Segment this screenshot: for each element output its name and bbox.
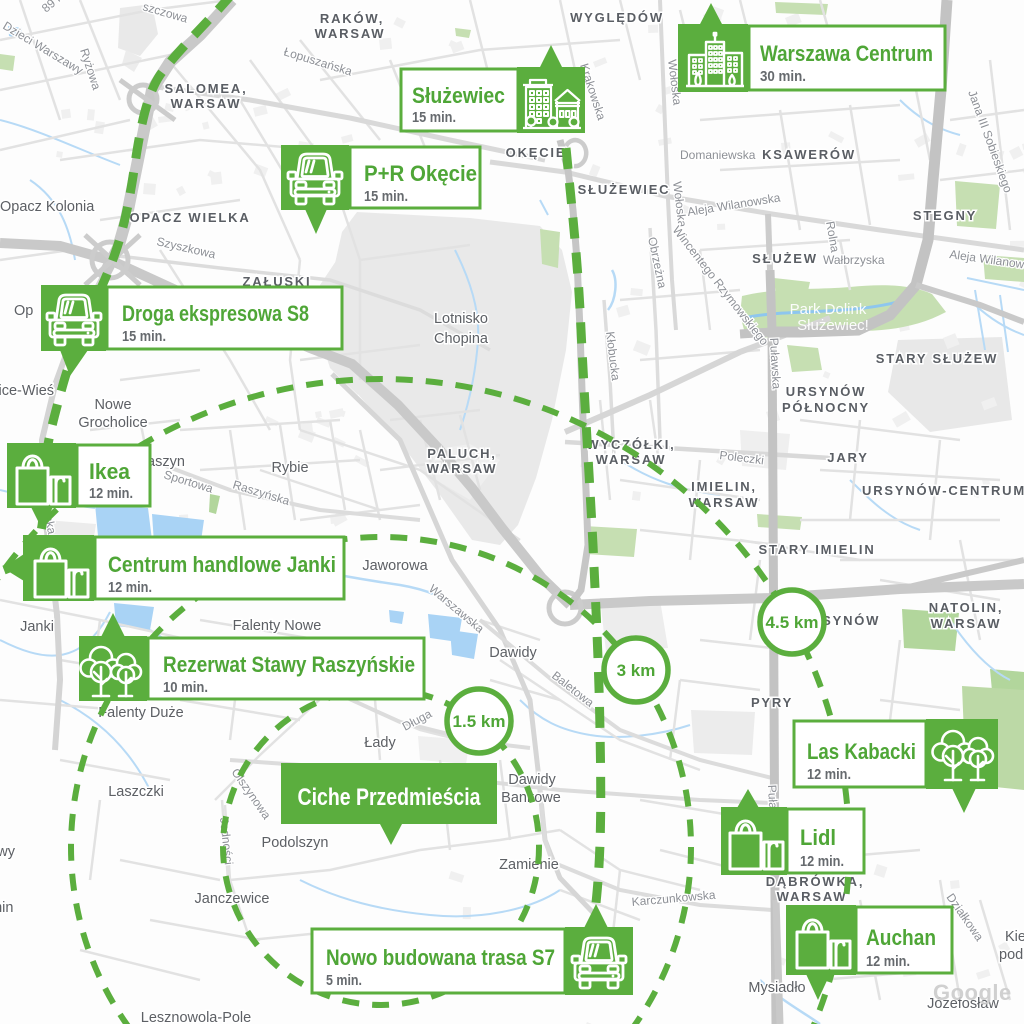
svg-text:Auchan: Auchan [866, 925, 936, 950]
svg-text:łowy: łowy [0, 844, 16, 860]
svg-text:Domaniewska: Domaniewska [680, 148, 756, 162]
svg-text:pod: pod [999, 947, 1023, 963]
svg-text:STEGNY: STEGNY [913, 208, 977, 223]
svg-text:WARSAW: WARSAW [931, 616, 1002, 631]
svg-text:PALUCH,: PALUCH, [427, 446, 496, 461]
svg-text:12 min.: 12 min. [800, 853, 844, 870]
svg-text:Rybie: Rybie [271, 460, 308, 476]
svg-text:KSAWERÓW: KSAWERÓW [762, 147, 856, 162]
svg-text:Grocholice: Grocholice [78, 415, 147, 431]
svg-text:Lidl: Lidl [800, 825, 836, 850]
svg-text:WARSAW: WARSAW [315, 26, 386, 41]
svg-text:STARY SŁUŻEW: STARY SŁUŻEW [876, 351, 998, 366]
svg-text:Janki: Janki [20, 619, 54, 635]
svg-text:Op: Op [14, 303, 33, 319]
svg-text:10 min.: 10 min. [163, 679, 208, 696]
svg-text:Służewiec!: Służewiec! [797, 317, 869, 334]
svg-text:Chopina: Chopina [434, 331, 489, 347]
svg-text:Ciche Przedmieścia: Ciche Przedmieścia [298, 784, 482, 811]
svg-text:Jaworowa: Jaworowa [362, 558, 428, 574]
svg-text:SALOMEA,: SALOMEA, [164, 81, 247, 96]
svg-text:Kie: Kie [1005, 929, 1024, 945]
svg-text:P+R Okęcie: P+R Okęcie [364, 161, 477, 186]
svg-text:Falenty Duże: Falenty Duże [98, 705, 183, 721]
svg-text:JARY: JARY [827, 450, 868, 465]
svg-text:wice-Wieś: wice-Wieś [0, 383, 54, 399]
svg-text:OPACZ WIELKA: OPACZ WIELKA [129, 210, 250, 225]
svg-text:URSYNÓW-CENTRUM: URSYNÓW-CENTRUM [862, 483, 1024, 498]
svg-text:12 min.: 12 min. [866, 953, 910, 970]
svg-text:SŁUŻEWIEC: SŁUŻEWIEC [578, 182, 671, 197]
svg-text:Droga ekspresowa S8: Droga ekspresowa S8 [122, 301, 309, 326]
svg-text:12 min.: 12 min. [89, 485, 133, 502]
svg-text:STARY IMIELIN: STARY IMIELIN [758, 542, 875, 557]
svg-text:URSYNÓW: URSYNÓW [786, 384, 867, 399]
svg-text:5 min.: 5 min. [326, 972, 362, 989]
svg-text:OKĘCIE: OKĘCIE [506, 145, 567, 160]
svg-text:Las Kabacki: Las Kabacki [807, 739, 916, 764]
svg-text:15 min.: 15 min. [364, 188, 408, 205]
svg-text:Janczewice: Janczewice [195, 891, 270, 907]
svg-text:PÓŁNOCNY: PÓŁNOCNY [782, 400, 870, 415]
svg-text:omin: omin [0, 900, 13, 916]
svg-text:30 min.: 30 min. [760, 68, 806, 85]
svg-text:WARSAW: WARSAW [777, 889, 848, 904]
svg-text:15 min.: 15 min. [122, 328, 166, 345]
svg-text:3 km: 3 km [617, 661, 656, 680]
svg-text:RAKÓW,: RAKÓW, [320, 11, 384, 26]
svg-text:Warszawa Centrum: Warszawa Centrum [760, 41, 933, 66]
svg-text:IMIELIN,: IMIELIN, [691, 479, 757, 494]
svg-text:Dawidy: Dawidy [489, 645, 537, 661]
svg-text:4.5 km: 4.5 km [766, 613, 819, 632]
svg-text:Nowo budowana trasa S7: Nowo budowana trasa S7 [326, 945, 555, 970]
svg-text:Służewiec: Służewiec [412, 83, 505, 108]
svg-text:Nowe: Nowe [94, 397, 131, 413]
svg-text:Zamienie: Zamienie [499, 857, 559, 873]
svg-text:Podolszyn: Podolszyn [262, 835, 329, 851]
svg-text:Dawidy: Dawidy [508, 772, 556, 788]
svg-text:1.5 km: 1.5 km [453, 712, 506, 731]
svg-text:Google: Google [933, 980, 1012, 1005]
svg-text:Wałbrzyska: Wałbrzyska [823, 253, 885, 267]
svg-text:Park Dolink: Park Dolink [790, 301, 867, 318]
svg-text:12 min.: 12 min. [108, 579, 152, 596]
svg-text:Ikea: Ikea [89, 459, 131, 484]
svg-text:Opacz Kolonia: Opacz Kolonia [0, 199, 95, 215]
svg-text:Lesznowola-Pole: Lesznowola-Pole [141, 1010, 251, 1024]
svg-text:SŁUŻEW: SŁUŻEW [752, 251, 818, 266]
svg-text:Puławska: Puławska [767, 337, 784, 389]
svg-text:WYGLĘDÓW: WYGLĘDÓW [570, 10, 664, 25]
svg-text:Łady: Łady [364, 735, 396, 751]
svg-text:Falenty Nowe: Falenty Nowe [233, 618, 322, 634]
svg-text:Centrum handlowe Janki: Centrum handlowe Janki [108, 552, 336, 577]
svg-text:PYRY: PYRY [751, 695, 793, 710]
svg-text:NATOLIN,: NATOLIN, [929, 600, 1004, 615]
svg-text:Rezerwat Stawy Raszyńskie: Rezerwat Stawy Raszyńskie [163, 652, 415, 677]
svg-text:15 min.: 15 min. [412, 109, 456, 126]
svg-text:WARSAW: WARSAW [171, 96, 242, 111]
svg-text:WARSAW: WARSAW [427, 461, 498, 476]
svg-text:Laszczki: Laszczki [108, 784, 164, 800]
svg-text:Mysiadło: Mysiadło [748, 980, 805, 996]
svg-text:Lotnisko: Lotnisko [434, 311, 488, 327]
svg-text:12 min.: 12 min. [807, 766, 851, 783]
